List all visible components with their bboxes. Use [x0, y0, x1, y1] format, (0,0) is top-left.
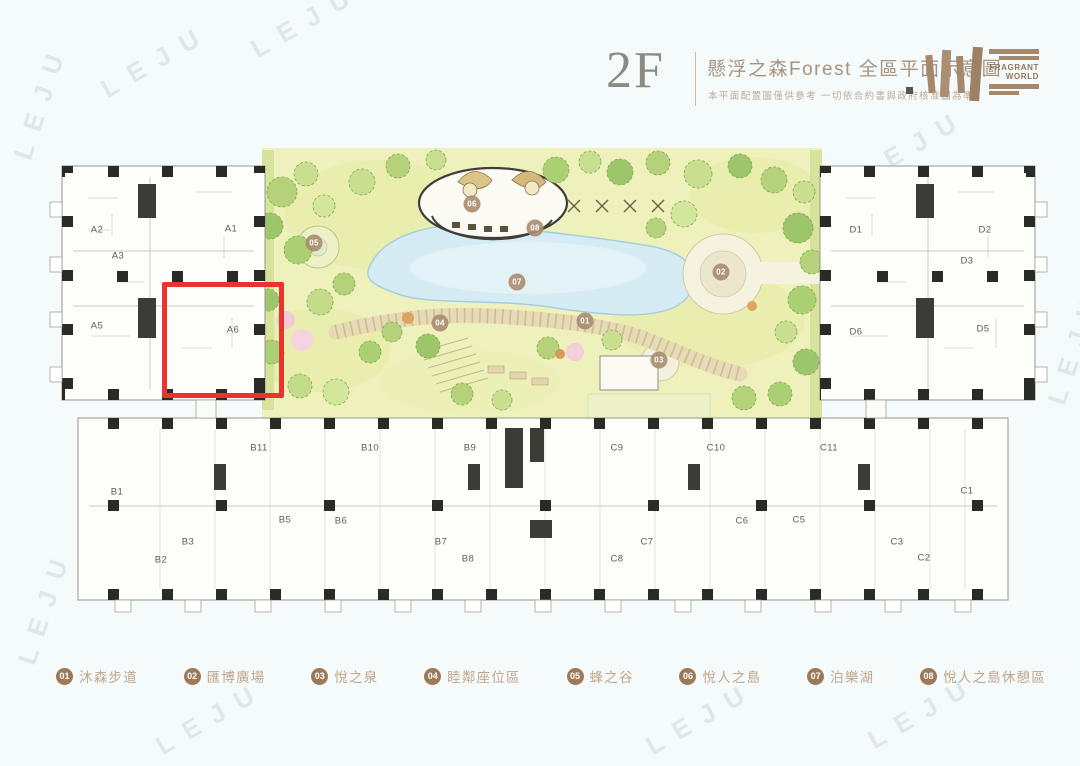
- unit-label-b8: B8: [462, 554, 474, 565]
- unit-label-a2: A2: [91, 225, 103, 236]
- logo-rule: [989, 49, 1039, 54]
- brand-name-line1: FRAGRANT: [989, 63, 1039, 72]
- legend-item-02: 02匯博廣場: [184, 666, 266, 686]
- floor-plan-poster: LEJULEJULEJULEJULEJULEJULEJULEJULEJULEJU: [0, 0, 1080, 766]
- logo-brushstroke-icon: [956, 56, 965, 93]
- logo-rule: [989, 84, 1039, 89]
- plan-marker-01: 01: [577, 313, 594, 330]
- unit-label-c11: C11: [820, 443, 838, 454]
- legend-item-01: 01沐森步道: [56, 666, 138, 686]
- legend-item-04: 04睦鄰座位區: [424, 666, 521, 686]
- unit-label-b11: B11: [250, 443, 267, 454]
- logo-wordmark: FRAGRANT WORLD: [989, 49, 1039, 95]
- unit-label-d2: D2: [979, 225, 992, 236]
- logo-rule: [989, 91, 1019, 95]
- unit-label-c9: C9: [611, 443, 624, 454]
- legend-label: 睦鄰座位區: [447, 666, 521, 686]
- legend-label: 蜂之谷: [590, 666, 634, 686]
- legend-label: 悅之泉: [334, 666, 378, 686]
- unit-label-b1: B1: [111, 487, 123, 498]
- logo-brushstroke-icon: [940, 50, 951, 97]
- unit-label-c6: C6: [736, 516, 749, 527]
- plan-marker-06: 06: [464, 196, 481, 213]
- plan-marker-05: 05: [306, 235, 323, 252]
- legend-label: 悅人之島: [702, 666, 761, 686]
- plan-marker-03: 03: [651, 352, 668, 369]
- legend-label: 匯博廣場: [207, 666, 266, 686]
- header-divider: [695, 52, 696, 106]
- unit-label-c5: C5: [793, 515, 806, 526]
- logo-brushstroke-icon: [969, 47, 983, 102]
- legend-badge: 05: [567, 668, 584, 685]
- unit-label-b2: B2: [155, 555, 167, 566]
- legend-item-06: 06悅人之島: [679, 666, 761, 686]
- unit-label-b3: B3: [182, 537, 194, 548]
- legend-label: 悅人之島休憩區: [943, 666, 1046, 686]
- legend-badge: 01: [56, 668, 73, 685]
- brand-name-line2: WORLD: [989, 72, 1039, 81]
- brand-logo: FRAGRANT WORLD: [925, 47, 1039, 103]
- plan-marker-07: 07: [509, 274, 526, 291]
- legend-badge: 08: [920, 668, 937, 685]
- highlight-box-a6: [162, 282, 284, 398]
- legend-badge: 02: [184, 668, 201, 685]
- unit-label-c10: C10: [707, 443, 726, 454]
- legend-badge: 07: [807, 668, 824, 685]
- unit-label-b7: B7: [435, 537, 447, 548]
- unit-label-b5: B5: [279, 515, 291, 526]
- unit-label-d3: D3: [961, 256, 974, 267]
- legend-item-07: 07泊樂湖: [807, 666, 874, 686]
- unit-label-c1: C1: [961, 486, 974, 497]
- legend-badge: 04: [424, 668, 441, 685]
- unit-label-c3: C3: [891, 537, 904, 548]
- unit-label-c8: C8: [611, 554, 624, 565]
- unit-label-d1: D1: [850, 225, 863, 236]
- plan-marker-08: 08: [527, 220, 544, 237]
- legend-item-05: 05蜂之谷: [567, 666, 634, 686]
- unit-label-a1: A1: [225, 224, 237, 235]
- unit-label-b6: B6: [335, 516, 347, 527]
- legend: 01沐森步道02匯博廣場03悅之泉04睦鄰座位區05蜂之谷06悅人之島07泊樂湖…: [56, 662, 1046, 690]
- unit-label-c2: C2: [918, 553, 931, 564]
- legend-item-03: 03悅之泉: [311, 666, 378, 686]
- legend-badge: 06: [679, 668, 696, 685]
- unit-label-a3: A3: [112, 251, 124, 262]
- unit-label-c7: C7: [641, 537, 654, 548]
- legend-item-08: 08悅人之島休憩區: [920, 666, 1046, 686]
- plan-marker-04: 04: [432, 315, 449, 332]
- disclaimer-mark: [906, 87, 913, 94]
- unit-label-a5: A5: [91, 321, 103, 332]
- unit-label-b9: B9: [464, 443, 476, 454]
- floor-label: 2F: [606, 42, 665, 99]
- logo-rule: [999, 56, 1039, 60]
- plan-marker-02: 02: [713, 264, 730, 281]
- unit-label-d5: D5: [977, 324, 990, 335]
- logo-brushstroke-icon: [925, 55, 935, 93]
- unit-label-b10: B10: [361, 443, 379, 454]
- legend-badge: 03: [311, 668, 328, 685]
- legend-label: 泊樂湖: [830, 666, 874, 686]
- legend-label: 沐森步道: [79, 666, 138, 686]
- unit-label-d6: D6: [850, 327, 863, 338]
